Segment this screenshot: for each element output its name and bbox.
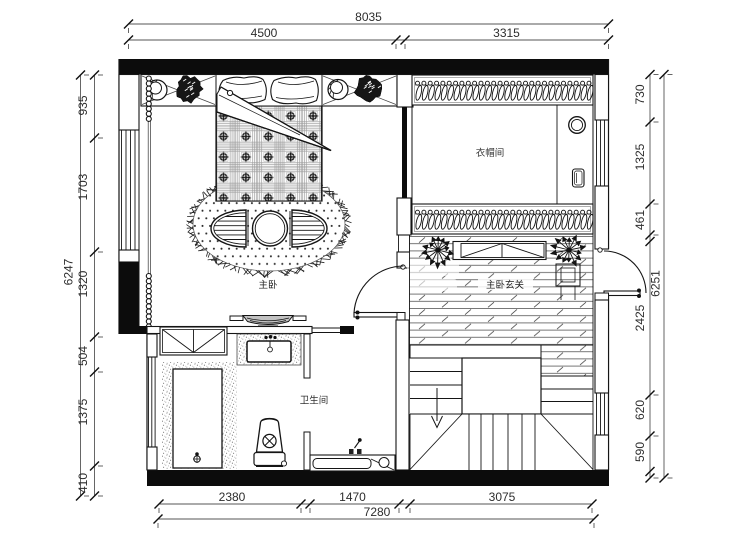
svg-text:主卧玄关: 主卧玄关 xyxy=(486,279,525,291)
svg-text:620: 620 xyxy=(633,400,647,420)
svg-text:461: 461 xyxy=(633,210,647,230)
svg-text:504: 504 xyxy=(76,346,90,366)
svg-text:1375: 1375 xyxy=(76,398,90,425)
svg-text:6247: 6247 xyxy=(62,258,76,285)
svg-text:卫生间: 卫生间 xyxy=(300,395,329,407)
svg-text:730: 730 xyxy=(633,84,647,104)
svg-text:3075: 3075 xyxy=(489,490,516,504)
svg-text:6251: 6251 xyxy=(649,270,663,297)
svg-text:935: 935 xyxy=(76,95,90,115)
svg-text:8035: 8035 xyxy=(355,10,382,24)
svg-text:衣帽间: 衣帽间 xyxy=(476,147,505,159)
svg-text:590: 590 xyxy=(633,442,647,462)
svg-text:410: 410 xyxy=(76,473,90,493)
svg-text:2425: 2425 xyxy=(633,304,647,331)
svg-text:主卧: 主卧 xyxy=(258,279,278,291)
svg-text:1703: 1703 xyxy=(76,173,90,200)
svg-text:1320: 1320 xyxy=(76,270,90,297)
svg-text:1325: 1325 xyxy=(633,143,647,170)
svg-text:3315: 3315 xyxy=(493,26,520,40)
svg-text:1470: 1470 xyxy=(339,490,366,504)
svg-text:7280: 7280 xyxy=(364,505,391,519)
svg-text:2380: 2380 xyxy=(219,490,246,504)
svg-text:4500: 4500 xyxy=(251,26,278,40)
